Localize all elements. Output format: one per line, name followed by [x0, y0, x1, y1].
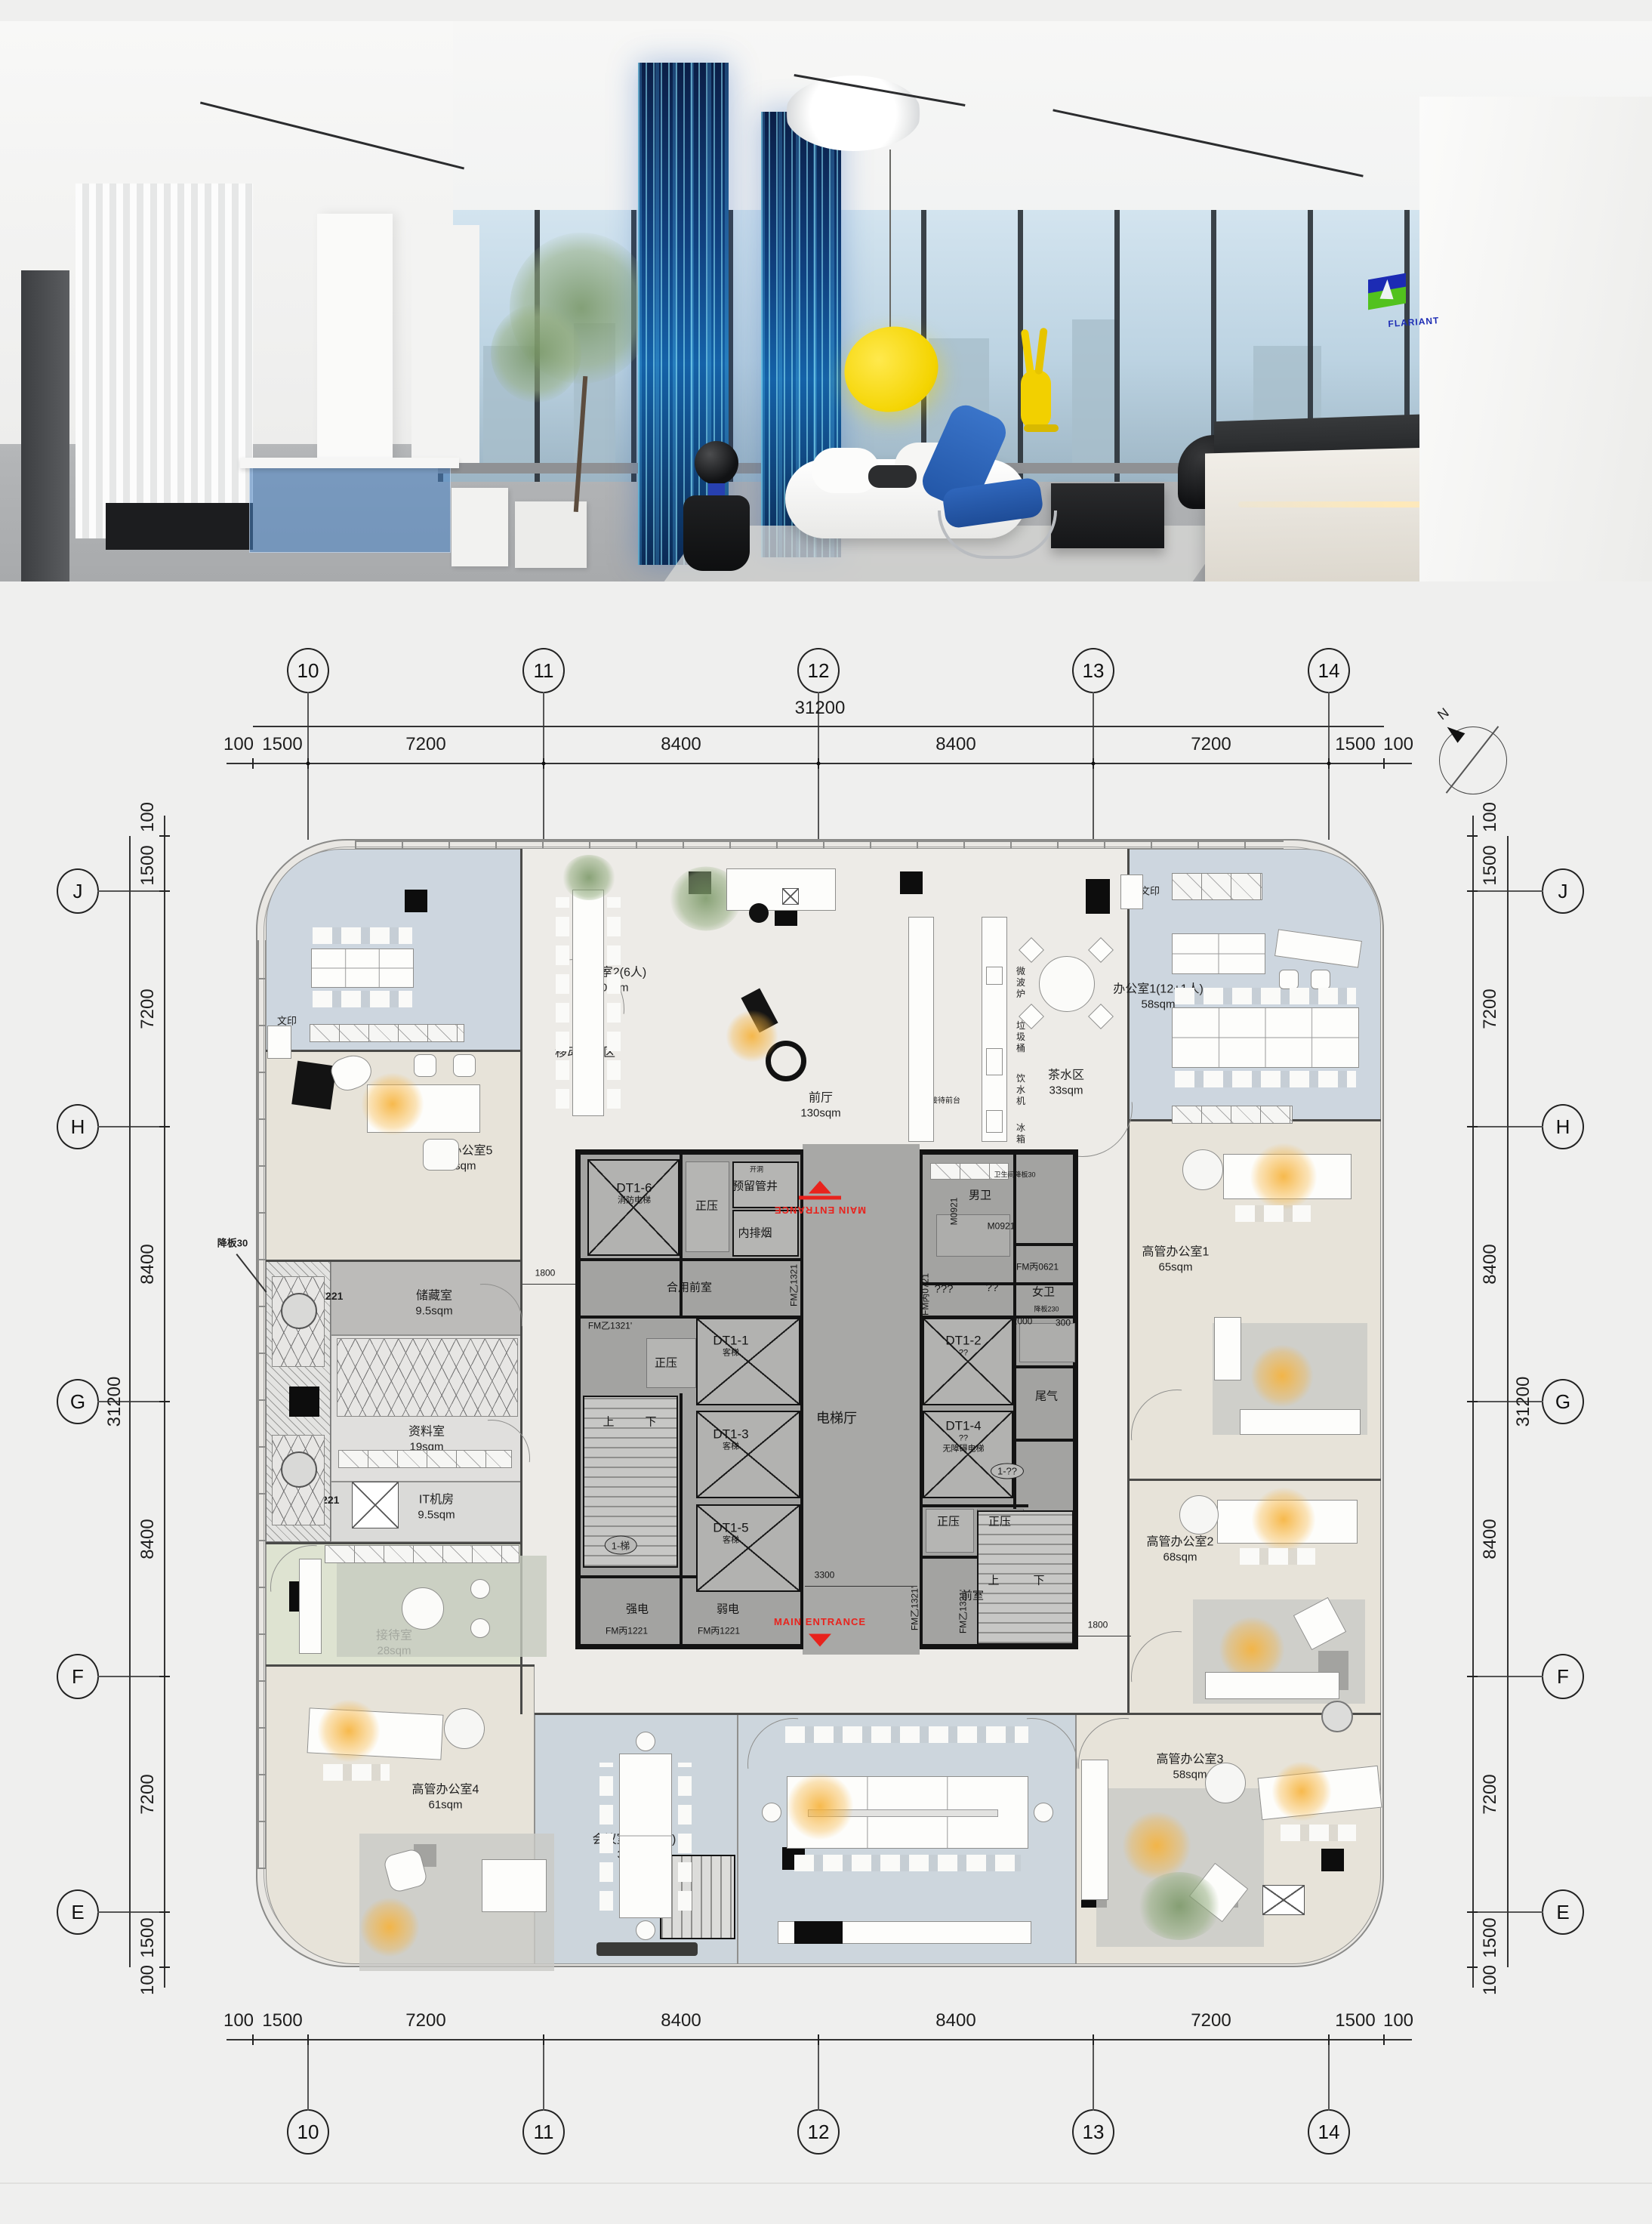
- furniture-stool: [453, 1054, 476, 1077]
- appliance-box: [986, 967, 1003, 985]
- grid-row-label: J: [1558, 880, 1568, 903]
- furniture-chairs: [556, 897, 569, 1109]
- door-code: FM丙1221: [606, 1626, 648, 1637]
- grid-bubble-row: H: [1542, 1104, 1584, 1149]
- white-pedestal: [452, 488, 508, 566]
- furniture-sofa: [1240, 1409, 1361, 1435]
- furniture-chair: [636, 1732, 655, 1751]
- furniture-printer: [267, 1026, 291, 1059]
- label-elevator-hall: 电梯厅: [816, 1410, 857, 1427]
- stair-dir: 下: [1033, 1575, 1044, 1589]
- room-label: 男卫: [969, 1189, 991, 1204]
- room-label: 尾气: [1035, 1390, 1058, 1405]
- counter-top: [240, 458, 459, 468]
- grid-bubble-col: 14: [1308, 2109, 1350, 2155]
- label-dt16: DT1-6消防电梯: [616, 1180, 652, 1207]
- dim-value: 1500: [137, 845, 158, 885]
- furniture-chairs: [599, 1763, 613, 1911]
- label-up1: 上: [603, 1416, 614, 1430]
- grid-col-label: 13: [1083, 659, 1105, 683]
- label-fm1221b: FM丙1221: [698, 1626, 740, 1637]
- furniture-chair: [470, 1579, 490, 1599]
- black-sphere-lamp: [695, 441, 738, 485]
- note: 卫生间降板30: [994, 1171, 1035, 1179]
- label-strong-power: 强电: [626, 1603, 649, 1618]
- grid-stem: [97, 1676, 165, 1677]
- dim-seg: 8400: [1480, 1244, 1501, 1284]
- dim-node: [307, 762, 310, 766]
- dim-seg: 100: [223, 2010, 254, 2031]
- fan: [281, 1293, 317, 1329]
- dim-line-total-left: [129, 836, 131, 1967]
- furniture-counter: [908, 917, 934, 1142]
- grid-bubble-row: F: [57, 1654, 99, 1699]
- dim-value: 100: [137, 1965, 158, 1995]
- label-down: 下: [1033, 1575, 1044, 1589]
- room-area: 68sqm: [1147, 1550, 1214, 1565]
- dim-seg: 8400: [137, 1244, 159, 1284]
- furniture-desk-cluster: [311, 949, 414, 988]
- label-stair2: 1-??: [991, 1464, 1024, 1479]
- grid-bubble-row: G: [1542, 1379, 1584, 1424]
- dim-1800-line: [522, 1284, 575, 1285]
- black-pedestal-table: [683, 495, 750, 571]
- label-positive-2: 正压: [655, 1357, 677, 1371]
- grid-stem: [97, 1126, 165, 1127]
- room-name: 储藏室: [415, 1288, 452, 1304]
- dim-value: 100: [1480, 1965, 1500, 1995]
- track-light: [1053, 109, 1363, 177]
- furniture-floor-lamp: [1321, 1701, 1353, 1732]
- black-bench: [106, 503, 253, 550]
- dim-value: 8400: [137, 1519, 158, 1559]
- dim-tick: [159, 1126, 170, 1127]
- shaft-label: 开洞: [750, 1165, 763, 1174]
- label-hall-counter: 接待前台: [930, 1096, 960, 1106]
- furniture-chair-black: [749, 903, 769, 923]
- label-positive-pressure: 正压: [695, 1200, 718, 1214]
- furniture-sofa: [1205, 1672, 1339, 1699]
- lift-code: DT1-6: [616, 1180, 652, 1196]
- dim-tick: [1467, 890, 1478, 892]
- blue-glass-counter: [249, 467, 451, 553]
- furniture-chair: [636, 1920, 655, 1940]
- label-entrance-top: MAIN ENTRANCE: [774, 1204, 866, 1216]
- dim-tick: [159, 1966, 170, 1968]
- room-area: 9.5sqm: [415, 1304, 452, 1319]
- note: 降板230: [1034, 1305, 1059, 1313]
- grid-row-label: H: [1556, 1115, 1570, 1139]
- grid-row-label: F: [72, 1665, 84, 1689]
- stair-dir: 上: [603, 1416, 614, 1430]
- dim-seg: 7200: [1191, 734, 1231, 755]
- dim-seg: 8400: [935, 734, 975, 755]
- dim-seg: 1500: [137, 1917, 159, 1957]
- grid-bubble-col: 10: [287, 2109, 329, 2155]
- lamp-glow: [1271, 1761, 1332, 1821]
- door-code: FM丙0621: [1016, 1262, 1059, 1273]
- lamp-glow: [786, 1772, 854, 1840]
- door-code: FM丙1221: [698, 1626, 740, 1637]
- label-drop230: 降板230: [1034, 1305, 1059, 1313]
- entrance-text: MAIN ENTRANCE: [774, 1616, 866, 1628]
- label-m0921b: M0921: [988, 1221, 1016, 1232]
- label-fm0621: FM丙0621: [1016, 1262, 1059, 1273]
- grid-col-label: 10: [297, 2121, 319, 2144]
- lift-code: DT1-4: [943, 1418, 985, 1434]
- room-name: 高管办公室1: [1142, 1245, 1210, 1260]
- it-equipment: [352, 1482, 399, 1528]
- label-dt14: DT1-4??无障碍电梯: [943, 1418, 985, 1455]
- shaft-label: 正压: [988, 1516, 1011, 1530]
- dim-seg: 8400: [137, 1519, 159, 1559]
- counter-label: 接待前台: [930, 1096, 960, 1106]
- grid-row-label: J: [73, 880, 83, 903]
- furniture-chairs: [1175, 1071, 1356, 1087]
- grid-col-label: 13: [1083, 2121, 1105, 2144]
- label-stair1: 1-梯: [605, 1536, 637, 1555]
- dim-value: 7200: [1480, 1774, 1500, 1814]
- grid-bubble-col: 11: [522, 2109, 565, 2155]
- grid-row-label: E: [71, 1901, 84, 1924]
- furniture-round-chair: [1179, 1495, 1219, 1535]
- core-wall: [680, 1393, 683, 1649]
- plan-plant: [1138, 1872, 1221, 1940]
- label-2000: 2000: [1012, 1316, 1033, 1328]
- label-shared-lobby: 合用前室: [667, 1282, 712, 1296]
- furniture-counter: [325, 1545, 519, 1563]
- dim-value: 1500: [1480, 845, 1500, 885]
- room-label: 女卫: [1032, 1286, 1055, 1300]
- dim-value: 7200: [137, 1774, 158, 1814]
- grid-col-label: 14: [1318, 659, 1340, 683]
- shaft-label: 内排烟: [738, 1227, 772, 1242]
- dim-tick: [252, 758, 254, 769]
- dim-tick: [1467, 1401, 1478, 1402]
- grid-bubble-col: 12: [797, 2109, 840, 2155]
- room-label: 电梯厅: [816, 1410, 857, 1427]
- label-microwave: 微波炉: [1015, 967, 1028, 1001]
- grid-row-label: G: [70, 1390, 85, 1414]
- label-unknown3: ???: [934, 1283, 953, 1297]
- label-dt11: DT1-1客梯: [713, 1333, 748, 1359]
- dim-tick: [1467, 835, 1478, 837]
- lamp-glow: [359, 1897, 420, 1957]
- stair-code: 1-??: [997, 1466, 1017, 1477]
- dim-node: [817, 762, 821, 766]
- wall: [535, 1713, 1076, 1715]
- label-dt13: DT1-3客梯: [713, 1427, 748, 1453]
- dim-seg: 100: [137, 802, 159, 832]
- appliance-box: [986, 1048, 1003, 1075]
- furniture-chairs: [1235, 1205, 1311, 1222]
- room-area: 65sqm: [1142, 1260, 1210, 1275]
- stair-dir: 上: [988, 1575, 999, 1589]
- dim-value: 100: [1383, 2010, 1413, 2031]
- stair-code: 1-梯: [612, 1541, 630, 1552]
- lift-code: DT1-2: [945, 1333, 981, 1349]
- dim-tick: [1467, 1126, 1478, 1127]
- column: [1086, 879, 1110, 914]
- furniture-chairs: [1175, 988, 1356, 1004]
- room-area: 33sqm: [1048, 1084, 1084, 1099]
- dim-value: 8400: [1480, 1519, 1500, 1559]
- label-1800-right: 1800: [1088, 1620, 1108, 1631]
- dim-total: 31200: [104, 1377, 125, 1427]
- dim-seg: 7200: [405, 2010, 445, 2031]
- furniture-side-table: [1262, 1885, 1305, 1915]
- dim-tick: [159, 1676, 170, 1677]
- entrance-bar-top: [799, 1196, 841, 1200]
- dark-cushion: [868, 465, 917, 488]
- note: 降板30: [217, 1236, 248, 1249]
- furniture-round-chair: [1205, 1763, 1246, 1803]
- room-label-it: IT机房9.5sqm: [418, 1492, 455, 1523]
- vertical-curtain: [76, 184, 253, 538]
- dim-seg: 8400: [935, 2010, 975, 2031]
- dim-seg: 100: [1383, 2010, 1413, 2031]
- wall: [1128, 1479, 1381, 1481]
- dim-value: 8400: [661, 2010, 701, 2031]
- furniture-stool: [1279, 970, 1299, 989]
- dim-tick: [1383, 2034, 1385, 2045]
- grid-row-label: H: [71, 1115, 85, 1139]
- entrance-text: MAIN ENTRANCE: [774, 1204, 866, 1216]
- furniture-round-table: [1039, 956, 1095, 1012]
- wall: [266, 1664, 535, 1667]
- lift-type: 客梯: [713, 1442, 748, 1453]
- dim-seg: 1500: [262, 2010, 302, 2031]
- grid-col-label: 11: [534, 659, 554, 683]
- grid-bubble-row: H: [57, 1104, 99, 1149]
- room-label-exec1: 高管办公室165sqm: [1142, 1245, 1210, 1275]
- label-fridge: 冰箱: [1015, 1123, 1028, 1146]
- furniture-chairs: [607, 897, 621, 1109]
- grid-bubble-col: 13: [1072, 648, 1114, 693]
- appliance: 饮水机: [1016, 1074, 1026, 1108]
- label-fm0721: FM丙0721: [920, 1273, 932, 1316]
- plan-plant: [562, 855, 615, 900]
- rabbit-sculpture-body: [1021, 370, 1051, 429]
- dim-value: 8400: [935, 734, 975, 754]
- lift-code: DT1-3: [713, 1427, 748, 1442]
- label-opening: 开洞: [750, 1165, 763, 1174]
- dim-tick: [1093, 2034, 1094, 2045]
- grid-bubble-col: 14: [1308, 648, 1350, 693]
- label-fm1321: FM乙1321: [789, 1264, 800, 1306]
- column: [289, 1387, 319, 1417]
- core-wall: [923, 1504, 1028, 1507]
- grid-col-label: 12: [808, 2121, 830, 2144]
- lamp-glow: [726, 1010, 778, 1063]
- core-wall: [800, 1149, 803, 1649]
- dim-value: 7200: [1191, 2010, 1231, 2031]
- furniture-stool: [1311, 970, 1330, 989]
- column: [900, 871, 923, 894]
- room-label-exec2: 高管办公室268sqm: [1147, 1535, 1214, 1565]
- furniture-desk-cluster: [1172, 1007, 1359, 1068]
- label-smoke-exhaust: 内排烟: [738, 1227, 772, 1242]
- grid-stem: [97, 1911, 165, 1913]
- label-fm1221: FM丙1221: [606, 1626, 648, 1637]
- elevator-dt1-1: [696, 1318, 800, 1405]
- lamp-glow: [1250, 1344, 1314, 1408]
- fan: [281, 1451, 317, 1488]
- door-code: M0921: [949, 1198, 960, 1226]
- room-label-storage: 储藏室9.5sqm: [415, 1288, 452, 1319]
- lamp-glow: [1122, 1811, 1191, 1880]
- label-unknown2: ??: [986, 1282, 999, 1296]
- room-label-tea: 茶水区33sqm: [1048, 1068, 1084, 1099]
- dim-value: 8400: [661, 734, 701, 754]
- dim-seg: 100: [137, 1965, 159, 1995]
- dim-value: 3300: [815, 1570, 835, 1581]
- appliance: 垃圾桶: [1016, 1021, 1026, 1055]
- label-1800-left: 1800: [535, 1268, 556, 1279]
- grid-stem: [1093, 2040, 1094, 2111]
- room-label: 弱电: [717, 1603, 739, 1618]
- dim-seg: 7200: [137, 1774, 159, 1814]
- white-column: [317, 214, 393, 463]
- grid-bubble-col: 11: [522, 648, 565, 693]
- dim-seg: 7200: [1480, 989, 1501, 1029]
- dim-tick: [1383, 758, 1385, 769]
- label-down1: 下: [645, 1416, 656, 1430]
- wall: [1127, 849, 1130, 1714]
- dim-tick: [159, 835, 170, 837]
- grid-col-label: 14: [1318, 2121, 1340, 2144]
- furniture-info-desk: [726, 868, 836, 911]
- dim-tick: [1467, 1911, 1478, 1913]
- lift-type: ??: [945, 1349, 981, 1359]
- furniture-chairs: [1281, 1825, 1356, 1841]
- door-code: M0921: [988, 1221, 1016, 1232]
- dim-value: 100: [1480, 802, 1500, 832]
- dim-tick: [1328, 2034, 1330, 2045]
- elevator-dt1-6: [587, 1159, 680, 1256]
- hero-render: FLARIANT FLARIANT: [0, 21, 1652, 581]
- dim-seg: 1500: [1480, 845, 1501, 885]
- wall: [266, 1260, 521, 1262]
- dim-value: 7200: [1191, 734, 1231, 754]
- label-reserved-shaft: 预留管井: [732, 1180, 778, 1195]
- dim-value: 1500: [1480, 1917, 1500, 1957]
- dim-tick: [159, 1401, 170, 1402]
- wall: [266, 1542, 521, 1544]
- furniture-chairs: [794, 1855, 1021, 1871]
- furniture-chairs: [785, 1726, 1028, 1743]
- core-wall: [1016, 1365, 1078, 1368]
- dim-value: 100: [223, 734, 254, 754]
- room-area: 9.5sqm: [418, 1508, 455, 1523]
- dim-value: 1500: [1335, 2010, 1375, 2031]
- wall: [266, 1050, 521, 1052]
- door-code: FM乙1321': [910, 1587, 921, 1630]
- grid-row-label: F: [1557, 1665, 1569, 1689]
- furniture-stool: [414, 1054, 436, 1077]
- elevator-dt1-5: [696, 1504, 800, 1592]
- dim-seg: 1500: [1335, 734, 1375, 755]
- elevator-dt1-3: [696, 1411, 800, 1498]
- grid-col-label: 12: [808, 659, 830, 683]
- column: [1321, 1849, 1344, 1871]
- logo-wall: [1419, 97, 1652, 581]
- label-fm1321b: FM乙1321': [588, 1321, 632, 1332]
- furniture-desk-cluster: [1172, 933, 1265, 974]
- dim-total: 31200: [795, 698, 846, 719]
- archive-shelf: [338, 1450, 512, 1468]
- dim-line-total-right: [1507, 836, 1509, 1967]
- dim-seg: 100: [1480, 1965, 1501, 1995]
- dim-seg: 8400: [661, 734, 701, 755]
- label-water: 饮水机: [1015, 1074, 1028, 1108]
- brand-logo-peak: [1380, 279, 1395, 300]
- dim-line-bottom: [227, 2039, 1412, 2040]
- column: [405, 890, 427, 912]
- dim-tick: [159, 1911, 170, 1913]
- stair-dir: 下: [645, 1416, 656, 1430]
- label-dt15: DT1-5客梯: [713, 1520, 748, 1547]
- grid-bubble-row: E: [57, 1889, 99, 1935]
- label-3300: 3300: [815, 1570, 835, 1581]
- dim-value: 100: [1383, 734, 1413, 754]
- dim-value: 7200: [1480, 989, 1500, 1029]
- dim-value: 300: [1056, 1318, 1071, 1329]
- door-code: FM乙1321: [789, 1264, 800, 1306]
- grid-bubble-row: F: [1542, 1654, 1584, 1699]
- lift-code: DT1-1: [713, 1333, 748, 1349]
- grid-stem: [97, 890, 165, 892]
- furniture-printer: [1120, 874, 1143, 909]
- dim-seg: 7200: [1480, 1774, 1501, 1814]
- grid-bubble-row: J: [1542, 868, 1584, 914]
- sheet: FLARIANT FLARIANT 10 11 12 13 14 10 11 1…: [0, 0, 1652, 2224]
- dim-seg: 100: [1480, 802, 1501, 832]
- room-name: 茶水区: [1048, 1068, 1084, 1084]
- core-wall: [1016, 1243, 1078, 1246]
- label-300: 300: [1056, 1318, 1071, 1329]
- furniture-round-chair: [1182, 1149, 1223, 1190]
- dim-value: 1500: [137, 1917, 158, 1957]
- furniture-shelf: [310, 1024, 464, 1042]
- label-fm1321b2: FM乙1321': [910, 1587, 921, 1630]
- label-trash: 垃圾桶: [1015, 1021, 1028, 1055]
- dim-value: 1500: [262, 2010, 302, 2031]
- shaft-label: 正压: [695, 1200, 718, 1214]
- dim-tick: [1467, 1676, 1478, 1677]
- dim-line-total-top: [253, 726, 1384, 727]
- label-positive-3: 正压: [937, 1516, 960, 1530]
- label-up: 上: [988, 1575, 999, 1589]
- dim-seg: 1500: [1335, 2010, 1375, 2031]
- label-fm1321b3: FM乙1321': [958, 1590, 969, 1633]
- room-label-exec4: 高管办公室461sqm: [412, 1782, 479, 1813]
- furniture-low-table: [482, 1859, 547, 1912]
- furniture-chairs: [678, 1763, 692, 1911]
- label-m0921: M0921: [949, 1198, 960, 1226]
- elevator-dt1-2: [923, 1318, 1013, 1405]
- dim-seg: 8400: [1480, 1519, 1501, 1559]
- furniture-chairs: [323, 1764, 390, 1781]
- grid-row-label: G: [1555, 1390, 1570, 1414]
- dim-tick: [252, 2034, 254, 2045]
- furniture-tea-counter: [982, 917, 1007, 1142]
- tv-panel: [291, 1061, 337, 1110]
- furniture-sofa: [299, 1559, 322, 1654]
- room-name: 高管办公室4: [412, 1782, 479, 1798]
- dim-tick: [159, 890, 170, 892]
- lamp-glow: [361, 1072, 424, 1136]
